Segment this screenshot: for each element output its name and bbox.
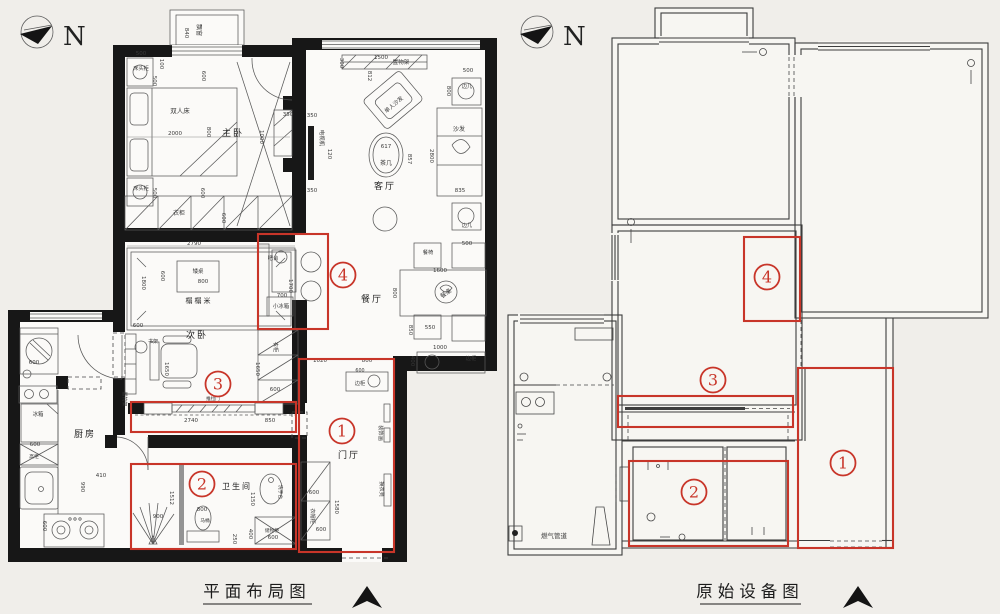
room-label: 卫生间 [222,481,252,491]
right-plan-title: 原始设备图 [696,582,804,601]
room-label: 餐厅 [361,293,383,305]
plan-label: 储物柜 [265,527,280,534]
zone-number-3: 3 [213,375,223,394]
gas-pipe-dot [512,530,518,536]
floorplan-canvas: N [0,0,1000,614]
compass-left: N [20,16,86,52]
plan-label: 600 [133,323,144,329]
plan-label: 2790 [187,241,201,247]
plan-label: 书架 [148,338,158,345]
plan-label: 600 [200,71,206,82]
plan-label: 990 [79,482,85,493]
north-letter: N [63,22,86,52]
zone-number-1: 1 [838,454,848,473]
plan-label: 800 [197,507,208,513]
plan-label: 500 [151,76,157,87]
zone-number-2: 2 [197,475,207,494]
plan-label: 850 [407,325,413,336]
plan-label: 装饰画 [377,425,385,441]
plan-label: 冰箱 [33,410,44,418]
plan-label: 600 [29,360,40,366]
tv [308,126,314,180]
up-arrow-right [843,586,873,608]
zone-number-1: 1 [337,422,347,441]
plan-label: 1000 [258,130,264,144]
plan-label: 餐椅 [423,248,433,256]
plan-label: 1512 [168,491,174,505]
plan-label: 400 [409,356,415,367]
plan-label: 400 [247,529,253,540]
plan-label: 840 [183,28,189,39]
right-plan: N [508,8,988,608]
north-needle [520,26,552,44]
plan-label: 1000 [433,345,447,351]
left-plan-title: 平面布局图 [203,582,311,601]
kitchen-window [30,312,102,320]
plan-label: 2000 [168,131,182,137]
plan-label: 850 [265,418,276,424]
north-needle [20,26,52,44]
plan-label: 900 [153,514,164,520]
plan-label: 600 [220,213,226,224]
plan-label: 小冰箱 [273,302,290,310]
plan-label: 2740 [184,418,198,424]
room-label: 门厅 [338,449,360,461]
plan-label: 双人床 [170,106,190,115]
plan-label: 边几 [462,221,472,229]
plan-label: 1650 [254,362,260,376]
plan-label: 置物架 [121,391,128,406]
plan-label: 857 [406,154,412,165]
plan-label: 500 [151,188,157,199]
plan-label: 300 [338,58,344,69]
plan-label: 600 [268,535,279,541]
plan-label: 600 [159,271,165,282]
plan-label: 高柜 [29,453,39,460]
plan-label: 120 [326,149,332,160]
plan-label: 600 [355,368,364,374]
plan-label: 800 [198,279,209,285]
plan-label: 800 [445,86,451,97]
plan-label: 床头柜 [133,64,149,72]
left-plan: N [8,10,497,608]
zone-number-4: 4 [762,268,772,287]
plan-label: 洗手台 [277,485,284,500]
plan-label: 800 [391,288,397,299]
plan-label: 衣帽柜 [309,508,317,524]
plan-label: 600 [30,442,41,448]
plan-label: 1650 [163,362,169,376]
plan-label: 500 [462,241,473,247]
plan-label: 置物架 [393,58,410,66]
plan-label: 电视机 [318,130,326,147]
plan-label: 1600 [433,268,447,274]
plan-label: 350 [307,188,318,194]
up-arrow-left [352,586,382,608]
plan-label: 边柜 [466,354,476,362]
plan-label: 350 [283,112,294,118]
plan-label: 衣柜 [173,209,185,217]
plan-label: 500 [463,68,474,74]
plan-label: 800 [205,127,211,138]
plan-label: 500 [136,51,147,57]
zone-number-2: 2 [689,483,699,502]
plan-label: 床头柜 [133,184,149,192]
zone-number-3: 3 [708,371,718,390]
zone-number-4: 4 [338,266,348,285]
plan-label: 衣柜 [272,342,280,352]
plan-label: 飘窗 [195,24,203,36]
right-plan-labels: 燃气管道 [541,531,568,540]
plan-label: 边柜 [355,379,365,387]
plan-label: 矮桌 [193,267,204,275]
plan-label: 617 [381,144,392,150]
plan-label: 600 [316,527,327,533]
plan-label: 410 [96,473,107,479]
plan-label: 250 [231,534,237,545]
plan-label: 100 [158,59,164,70]
plan-label: 550 [425,325,436,331]
room-label: 主卧 [222,127,244,139]
plan-label: 700 [277,293,288,299]
plan-label: 812 [366,71,372,82]
plan-label: 1580 [333,500,339,514]
room-label: 榻榻米 [186,296,213,305]
plan-label: 1500 [374,55,388,61]
plan-label: 1700 [287,279,293,293]
plan-label: 茶几 [380,159,392,167]
plan-label: 边几 [462,82,472,90]
plan-label: 600 [41,521,47,532]
plan-label: 吧台 [268,254,279,262]
shower-partition [179,463,184,545]
plan-label: 沙发 [453,125,465,133]
plan-label: 835 [455,188,466,194]
plan-label: 600 [199,188,205,199]
compass-right: N [520,16,586,52]
plan-label: 600 [309,490,320,496]
plan-label: 换衣凳 [378,481,386,497]
plan-label: 2800 [428,149,434,163]
plan-label: 1150 [249,492,255,506]
plan-label: 马桶 [200,517,210,524]
north-letter: N [563,22,586,52]
plan-label: 600 [270,387,281,393]
room-label: 次卧 [186,329,208,341]
room-label: 客厅 [374,180,396,192]
plan-label: 燃气管道 [541,531,568,540]
plan-label: 350 [307,113,318,119]
floor-plans: N [0,0,1000,614]
right-floor [508,38,988,555]
plan-label: 1800 [140,276,146,290]
room-label: 厨房 [74,428,96,440]
